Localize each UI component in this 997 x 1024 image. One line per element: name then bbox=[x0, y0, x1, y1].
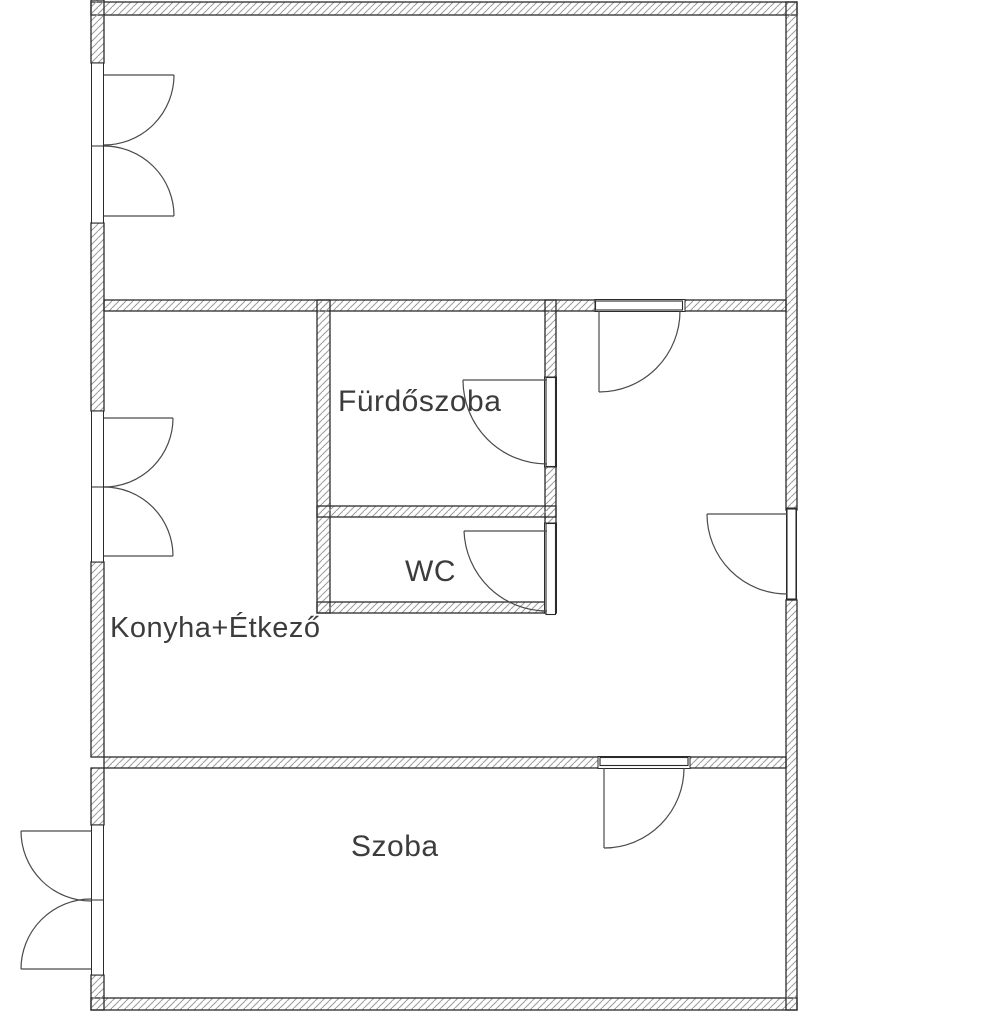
outer-wall-left-seg5 bbox=[91, 975, 104, 1010]
outer-wall-bottom bbox=[91, 998, 797, 1010]
hall-door-leaf bbox=[596, 301, 683, 310]
bathroom-wall-bottom bbox=[317, 506, 556, 517]
hall-door-swing bbox=[599, 311, 680, 392]
entry-door-swing bbox=[707, 514, 787, 594]
szoba-door-swing bbox=[604, 768, 684, 848]
room-label-konyha-etkezo: Konyha+Étkező bbox=[110, 611, 320, 644]
room-label-wc: WC bbox=[405, 555, 456, 588]
room-label-szoba: Szoba bbox=[351, 830, 439, 863]
bathroom-wall-left bbox=[317, 300, 330, 613]
outer-wall-left-seg4 bbox=[91, 768, 104, 825]
top-room-double-door-opening bbox=[92, 63, 104, 223]
wc-door-leaf bbox=[546, 524, 556, 615]
bathroom-door-leaf bbox=[546, 378, 556, 467]
outer-wall-top bbox=[91, 2, 797, 15]
top-room-double-door-swing bbox=[104, 75, 174, 216]
szoba-double-door-swing bbox=[21, 831, 91, 969]
outer-wall-right-seg1 bbox=[786, 2, 797, 510]
szoba-door-leaf bbox=[600, 758, 688, 766]
outer-wall-left-seg3 bbox=[91, 562, 104, 757]
outer-wall-right-seg2 bbox=[786, 600, 797, 1010]
outer-wall-left-seg2 bbox=[91, 223, 104, 411]
entry-door-leaf bbox=[787, 509, 796, 599]
wc-door-swing bbox=[464, 531, 547, 611]
floor-plan-drawing: Fürdőszoba WC Konyha+Étkező Szoba bbox=[0, 0, 997, 1024]
outer-wall-left-seg1 bbox=[91, 0, 104, 63]
wc-wall-bottom bbox=[317, 602, 556, 613]
room-label-furdoszoba: Fürdőszoba bbox=[338, 385, 501, 418]
kitchen-double-door-swing bbox=[104, 418, 173, 556]
floor-plan-canvas: Fürdőszoba WC Konyha+Étkező Szoba bbox=[0, 0, 997, 1024]
